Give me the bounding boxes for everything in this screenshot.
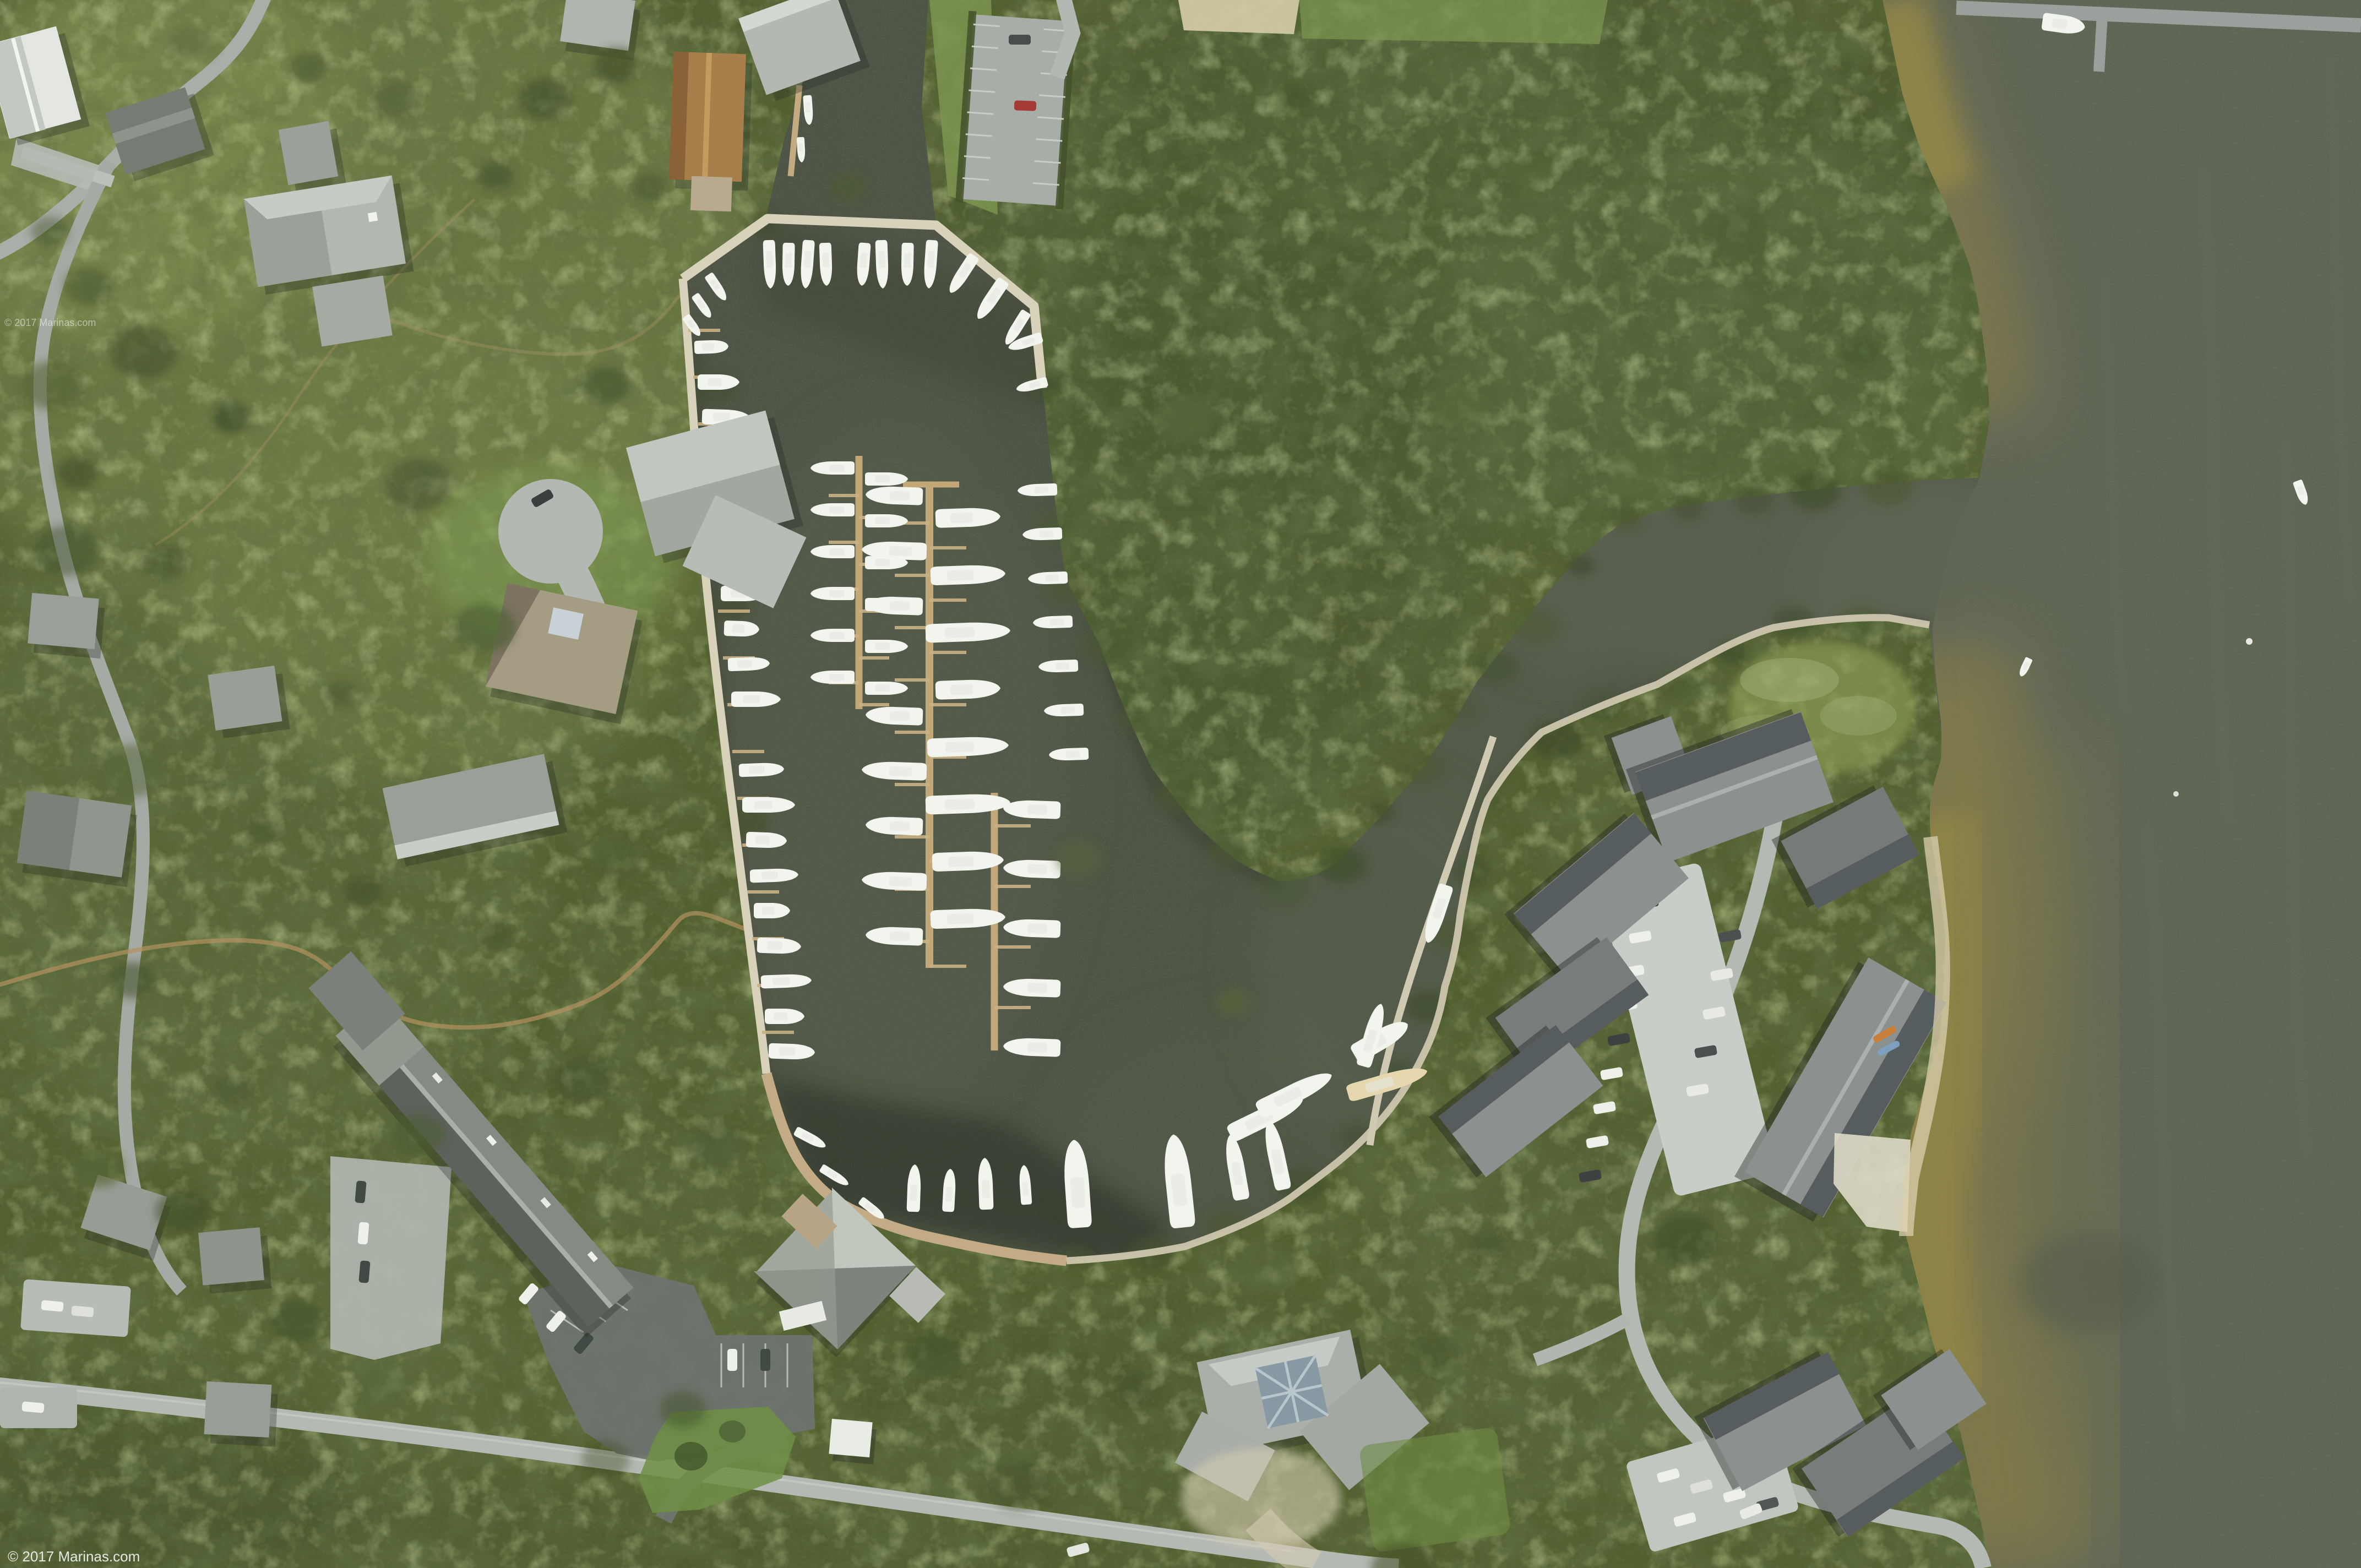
- svg-text:© 2017 Marinas.com: © 2017 Marinas.com: [4, 317, 96, 328]
- svg-text:© 2017 Marinas.com: © 2017 Marinas.com: [8, 1548, 140, 1565]
